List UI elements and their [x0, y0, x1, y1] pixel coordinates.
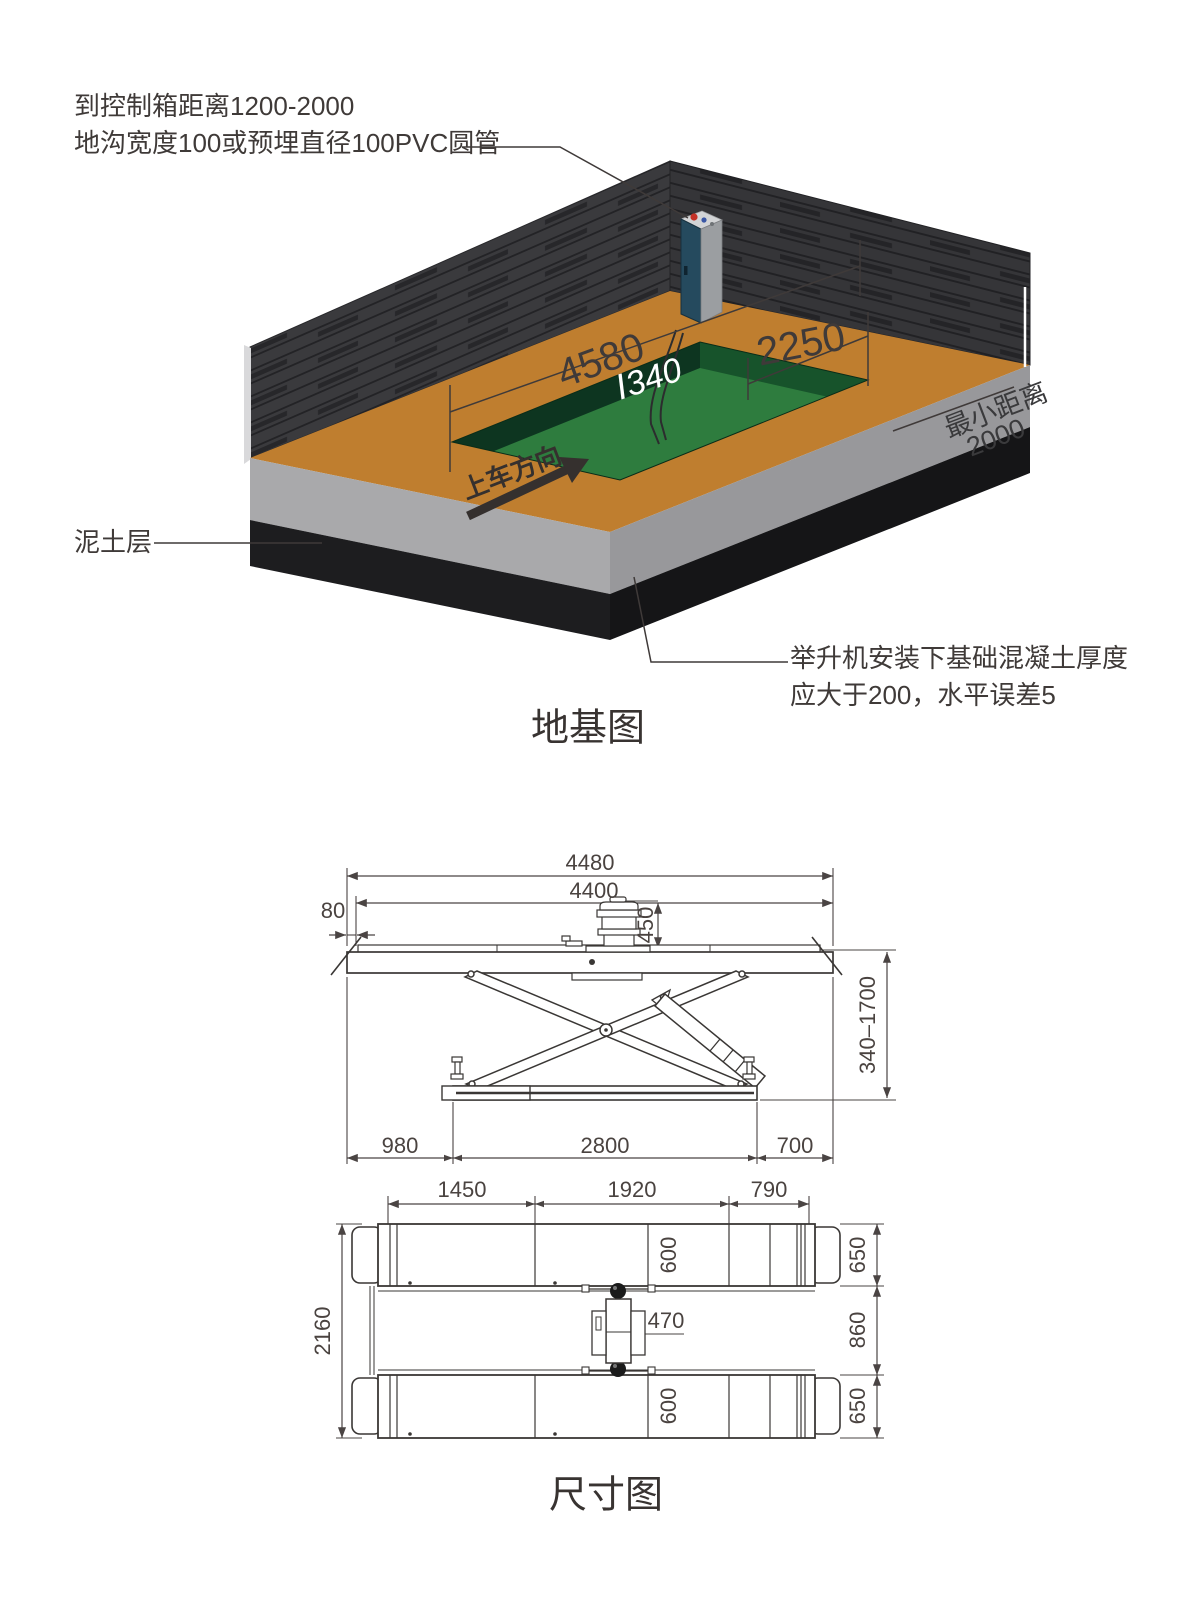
joint-top: [610, 1283, 626, 1299]
concrete-note-line1: 举升机安装下基础混凝土厚度: [790, 640, 1128, 677]
dim-2160: 2160: [310, 1307, 336, 1356]
control-knob: [701, 217, 706, 222]
concrete-note-line2: 应大于200，水平误差5: [790, 677, 1128, 714]
wall-end-cap: [244, 345, 251, 464]
dim-980: 980: [382, 1133, 419, 1159]
dim-450: 450: [633, 907, 659, 944]
door-handle: [684, 266, 688, 275]
dim-700: 700: [777, 1133, 814, 1159]
lift-platform-side: [331, 937, 842, 980]
installation-drawing-page: 到控制箱距离1200-2000 地沟宽度100或预埋直径100PVC圆管 泥土层…: [0, 0, 1200, 1610]
dim-790: 790: [751, 1177, 788, 1203]
foundation-title: 地基图: [531, 697, 645, 752]
platform-bottom: [378, 1375, 815, 1438]
dim-650-top: 650: [845, 1237, 871, 1274]
dim-1450: 1450: [438, 1177, 487, 1203]
dim-860: 860: [845, 1312, 871, 1349]
anchor-bolt-left: [451, 1057, 463, 1079]
dim-340-1700: 340–1700: [855, 976, 881, 1074]
control-box-note-line1: 到控制箱距离1200-2000: [74, 88, 500, 125]
central-power-unit: [582, 1283, 655, 1377]
dimensions-title: 尺寸图: [549, 1464, 663, 1519]
dim-2800: 2800: [581, 1133, 630, 1159]
dim-600-top: 600: [656, 1237, 682, 1274]
side-elevation-view: [329, 868, 896, 1164]
drawing-linework: [0, 0, 1200, 1610]
concrete-thickness-note: 举升机安装下基础混凝土厚度 应大于200，水平误差5: [790, 640, 1128, 714]
bracket-right: [631, 1311, 645, 1355]
dim-1920: 1920: [608, 1177, 657, 1203]
control-box-note: 到控制箱距离1200-2000 地沟宽度100或预埋直径100PVC圆管: [74, 88, 500, 162]
dim-80: 80: [321, 898, 345, 924]
control-box-note-line2: 地沟宽度100或预埋直径100PVC圆管: [74, 125, 500, 162]
scissor-mechanism: [465, 971, 765, 1090]
control-box: [681, 211, 722, 323]
soil-layer-label: 泥土层: [74, 524, 152, 561]
dim-600-bottom: 600: [656, 1388, 682, 1425]
dim-4480: 4480: [566, 850, 615, 876]
hydraulic-unit: [606, 1299, 631, 1363]
foundation-isometric-view: [154, 147, 1030, 662]
dim-650-bottom: 650: [845, 1388, 871, 1425]
emergency-button: [690, 213, 697, 220]
platform-top: [378, 1224, 815, 1286]
dim-4400: 4400: [570, 878, 619, 904]
plan-view: [336, 1196, 884, 1438]
dim-470: 470: [648, 1308, 685, 1334]
